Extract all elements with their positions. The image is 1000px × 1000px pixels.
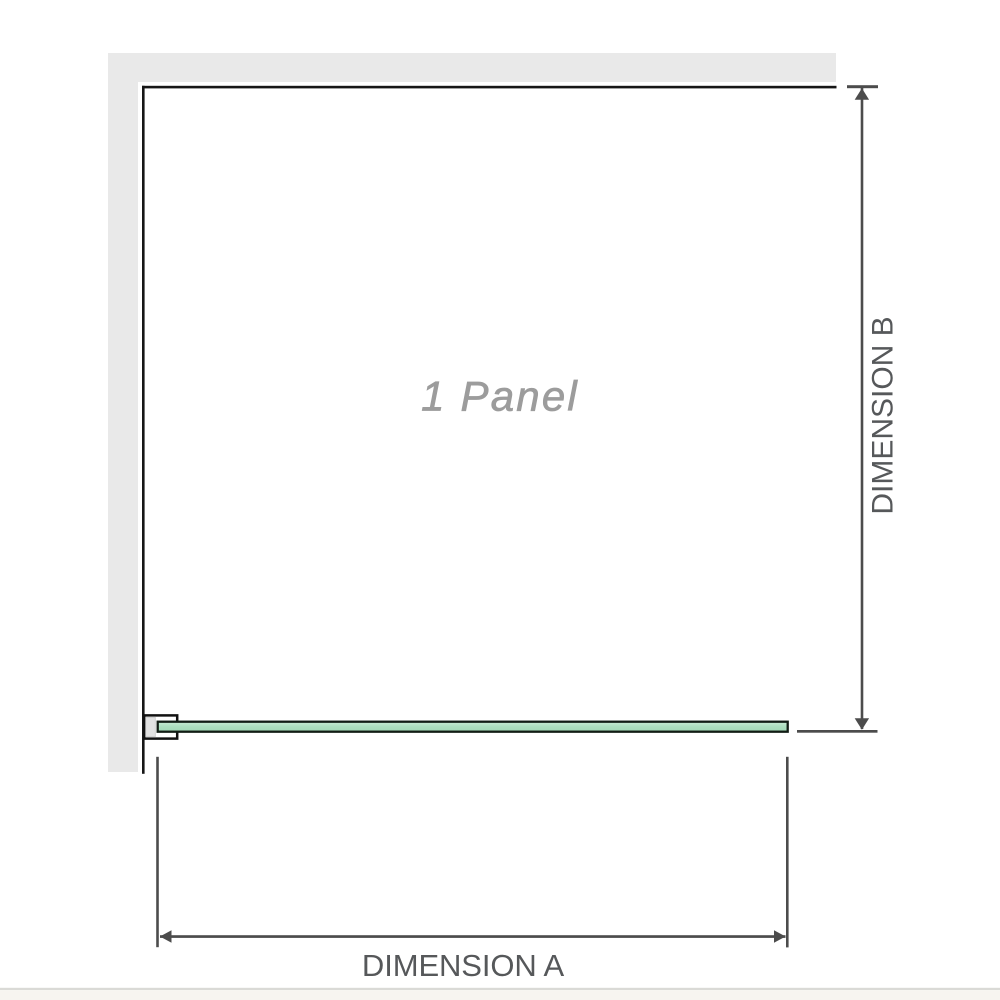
svg-text:DIMENSION B: DIMENSION B [867, 316, 900, 514]
svg-text:1 Panel: 1 Panel [421, 373, 579, 420]
svg-text:DIMENSION A: DIMENSION A [362, 948, 565, 983]
